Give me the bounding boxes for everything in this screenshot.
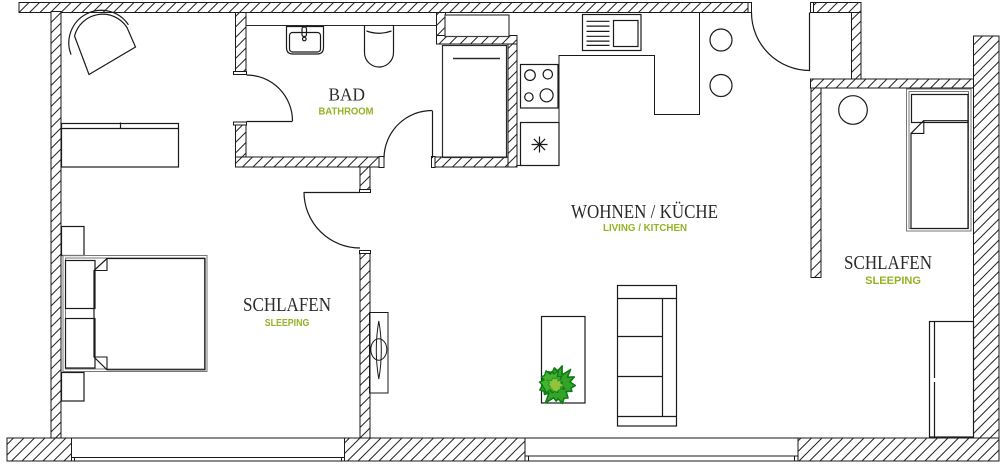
svg-text:BAD: BAD — [329, 85, 366, 105]
svg-text:SLEEPING: SLEEPING — [265, 318, 310, 329]
svg-text:SCHLAFEN: SCHLAFEN — [243, 294, 331, 316]
svg-text:BATHROOM: BATHROOM — [319, 107, 374, 118]
svg-text:SCHLAFEN: SCHLAFEN — [844, 252, 932, 274]
svg-text:LIVING / KITCHEN: LIVING / KITCHEN — [603, 223, 687, 234]
svg-text:WOHNEN / KÜCHE: WOHNEN / KÜCHE — [571, 200, 718, 223]
svg-text:SLEEPING: SLEEPING — [865, 275, 921, 287]
